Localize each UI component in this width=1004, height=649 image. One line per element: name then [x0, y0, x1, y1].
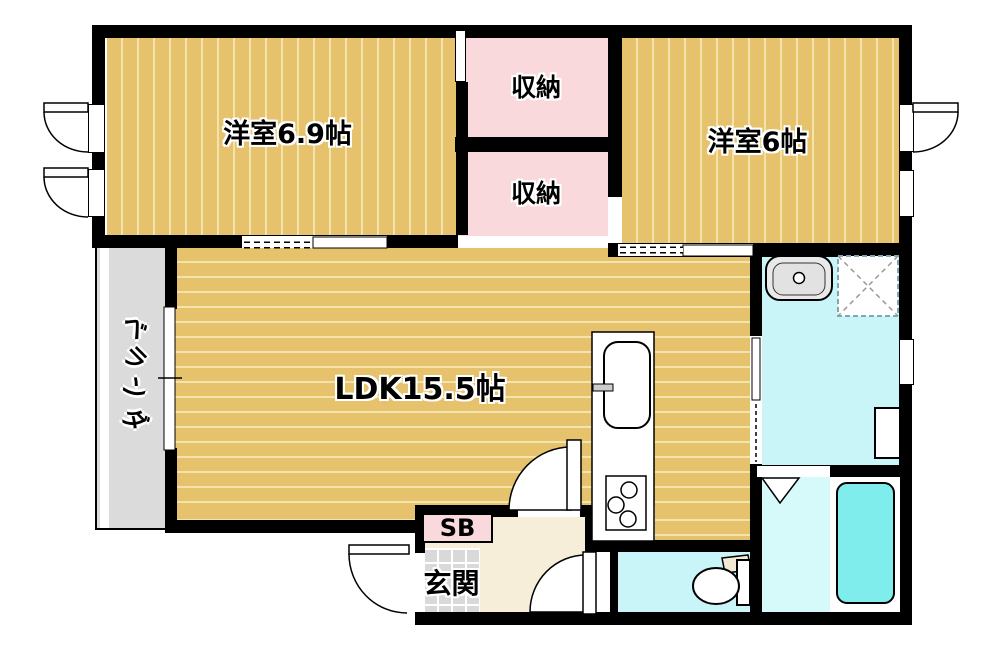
washroom-floor	[757, 257, 899, 465]
shoebox: SB	[422, 513, 493, 543]
toilet-floor	[618, 552, 750, 612]
wall-washroom-west-lower	[750, 464, 762, 612]
wall-ldk-west-lower	[165, 448, 177, 523]
toilet-door-recess	[593, 552, 610, 612]
window-washroom-east	[899, 339, 914, 385]
ldk-label: LDK15.5帖	[300, 364, 540, 408]
closet2-label: 収納	[481, 174, 591, 210]
bedroom1-label: 洋室6.9帖	[180, 112, 395, 151]
entrance-door	[349, 545, 409, 613]
wall-ldk-west-upper	[165, 243, 177, 309]
wall-kitchen-stub	[585, 505, 597, 552]
genkan-label: 玄関	[404, 562, 499, 602]
wall-ldk-south	[165, 520, 425, 533]
bedroom2-label: 洋室6帖	[655, 120, 860, 159]
wall-top	[92, 25, 912, 38]
opening-closet1	[455, 30, 466, 82]
window-bedroom2-east-2	[899, 170, 914, 217]
wall-bottom	[415, 612, 912, 625]
opening-ldk-door	[518, 505, 580, 517]
wall-toilet-west	[610, 552, 618, 614]
opening-bedroom2-ldk	[618, 244, 753, 256]
bathroom-floor	[757, 477, 899, 612]
floor-plan: 洋室6.9帖 収納 収納 洋室6帖 LDK15.5帖 ベランダ 玄関 SB	[0, 0, 1004, 649]
wall-closet1-west	[456, 82, 468, 137]
wall-closet-divider	[455, 137, 622, 152]
casement-window-right	[913, 103, 958, 152]
wall-closet2-west	[456, 152, 468, 235]
casement-window-left-1	[44, 103, 88, 152]
window-bedroom1-west-2	[88, 169, 105, 217]
casement-window-left-2	[44, 168, 88, 217]
opening-washroom-door	[750, 336, 762, 464]
opening-bedroom1-ldk	[242, 236, 387, 248]
ldk-floor-sw	[175, 506, 425, 521]
wall-washroom-west-upper	[750, 248, 762, 336]
window-bedroom1-west-1	[88, 104, 105, 153]
wall-closet-east	[608, 25, 622, 197]
ldk-floor-se	[655, 506, 750, 540]
opening-bath-door	[757, 466, 830, 477]
window-bedroom2-east-1	[899, 104, 914, 152]
closet1-label: 収納	[481, 68, 591, 104]
opening-closet2-bedroom2	[608, 197, 622, 243]
wall-toilet-north	[585, 540, 757, 552]
veranda-label: ベランダ	[108, 312, 160, 436]
shoebox-label: SB	[440, 514, 476, 542]
